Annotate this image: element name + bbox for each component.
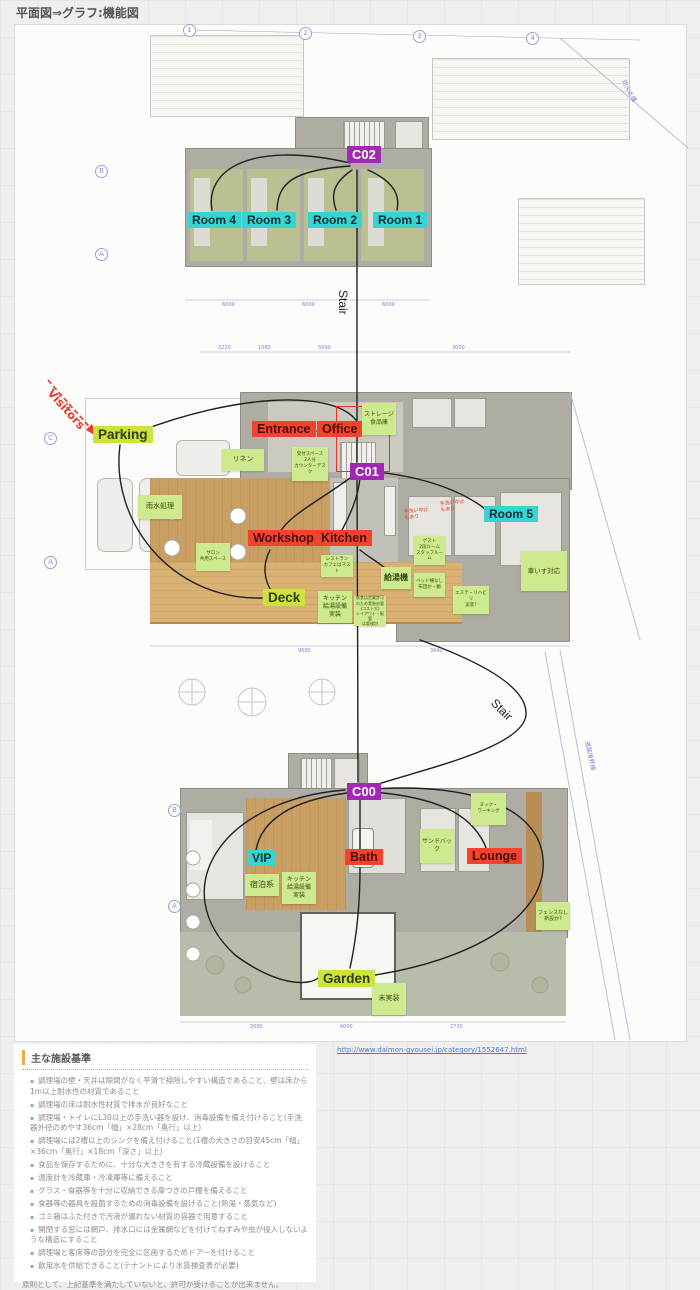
grid-ref-4: 4	[526, 32, 539, 45]
standards-item: 食品を保存するために、十分な大きさを有する冷蔵設備を設けること	[30, 1160, 308, 1171]
pantry-room	[454, 398, 486, 428]
sticky-salon[interactable]: サロン 共用スペース	[196, 543, 230, 571]
sticky-restaurant[interactable]: レストラン カフェはマスト	[321, 555, 353, 577]
page-title: 平面図⇒グラフ:機能図	[16, 4, 139, 21]
grid-ref-b-low: B	[168, 804, 181, 817]
dim-t2: 6000	[302, 302, 315, 308]
storage-room	[412, 398, 452, 428]
dim-m3: 5690	[318, 345, 331, 351]
standards-item: グラス・食器等を十分に収納できる扉つきの戸棚を備えること	[30, 1186, 308, 1197]
dim-m5: 9600	[298, 648, 311, 654]
node-entrance[interactable]: Entrance	[252, 421, 316, 437]
standards-item: 温度計を冷蔵庫・冷凍庫等に備えること	[30, 1173, 308, 1184]
sticky-storage[interactable]: ストレージ 食品庫	[362, 403, 396, 435]
node-office[interactable]: Office	[317, 421, 362, 437]
grid-ref-a-top: A	[95, 248, 108, 261]
standards-item: 調理場と客席等の部分を完全に区画するためドアーを付けること	[30, 1248, 308, 1259]
node-bath[interactable]: Bath	[345, 849, 383, 865]
grid-ref-1: 1	[183, 24, 196, 37]
sticky-este[interactable]: エステ・リハビリ 実装?	[453, 586, 489, 614]
sticky-boiler[interactable]: 給湯機	[381, 567, 411, 589]
standards-item: 開閉する窓には網戸、排水口には金属網などを付けてねずみや虫が侵入しないような構造…	[30, 1225, 308, 1246]
standards-item: 飲用水を供給できること(テナントにより水質検査表が必要)	[30, 1261, 308, 1272]
standards-item: 調理場・トイレにL30以上の手洗い器を設け、消毒設備を備え付けること(手洗器外径…	[30, 1113, 308, 1134]
node-vip[interactable]: VIP	[247, 850, 276, 866]
standards-list: 調理場の壁・天井は隙間がなく平滑で掃除しやすい構造であること、壁は床から1m以上…	[22, 1076, 308, 1272]
standards-footer: 原則として、上記基準を満たしていないと、許可が受けることが出来ません。	[22, 1279, 308, 1290]
standards-panel: 主な施設基準 調理場の壁・天井は隙間がなく平滑で掃除しやすい構造であること、壁は…	[14, 1044, 316, 1282]
dim-m2: 1080	[258, 345, 271, 351]
sticky-kitchen-equip-mid[interactable]: キッチン 給湯設備 実装	[318, 591, 352, 623]
sticky-kitchen-equip-low[interactable]: キッチン 給湯設備 実装	[282, 872, 316, 904]
dim-m1: 3220	[218, 345, 231, 351]
node-room-2[interactable]: Room 2	[308, 212, 362, 228]
node-c00[interactable]: C00	[347, 783, 381, 800]
grid-ref-b-top: B	[95, 165, 108, 178]
node-c01[interactable]: C01	[350, 463, 384, 480]
stairs-2f	[343, 121, 385, 149]
sticky-nook[interactable]: ヌック・ ワーキング	[471, 793, 506, 825]
node-garden[interactable]: Garden	[318, 970, 375, 987]
grid-ref-a-low: A	[168, 900, 181, 913]
sticky-not-implemented[interactable]: 未実装	[372, 983, 406, 1015]
node-deck[interactable]: Deck	[263, 589, 305, 606]
standards-item: 調理場には2槽以上のシンクを備え付けること(1槽の大きさの目安45cm「幅」×3…	[30, 1136, 308, 1157]
dim-m6: 3640	[430, 648, 443, 654]
roof-outline-lower-right	[518, 198, 645, 285]
dim-g3: 2730	[450, 1024, 463, 1030]
car-1	[97, 478, 133, 552]
dim-t1: 6000	[222, 302, 235, 308]
sticky-license-memo[interactable]: 飲食店営業許可 のため実装必要 (コスト大) レイアウト・配管 は要検討	[354, 596, 386, 626]
kitchen-counter-2	[384, 486, 396, 536]
stairs-gf	[300, 758, 332, 792]
node-room-4[interactable]: Room 4	[187, 212, 241, 228]
node-lounge[interactable]: Lounge	[467, 848, 522, 864]
sticky-wheelchair[interactable]: 車いす対応	[521, 551, 567, 591]
sticky-fence[interactable]: フェンスなし 新設か?	[536, 902, 570, 930]
sticky-linen[interactable]: リネン	[222, 449, 264, 471]
standards-heading-wrap: 主な施設基準	[22, 1050, 308, 1070]
node-room-3[interactable]: Room 3	[242, 212, 296, 228]
node-c02[interactable]: C02	[347, 146, 381, 163]
standards-item: 調理場の床は耐水性材質で排水が良好なこと	[30, 1100, 308, 1111]
page: { "title": "平面図⇒グラフ:機能図", "nodes": { "c0…	[0, 0, 700, 1282]
dim-m4: 3000	[452, 345, 465, 351]
grid-ref-2: 2	[299, 27, 312, 40]
node-room-5[interactable]: Room 5	[484, 506, 538, 522]
source-link[interactable]: http://www.daimon-gyousei.jp/category/15…	[337, 1046, 527, 1054]
dim-g1: 2000	[250, 1024, 263, 1030]
wc-2f	[395, 121, 423, 149]
sticky-bed-note[interactable]: ベッド柵なし 布団か・棚	[414, 573, 445, 597]
sticky-rainwater[interactable]: 雨水処理	[138, 495, 182, 519]
vip-bed	[190, 820, 212, 870]
node-room-1[interactable]: Room 1	[373, 212, 427, 228]
node-workshop[interactable]: Workshop	[248, 530, 319, 546]
roof-outline-left	[150, 35, 304, 117]
sticky-sandbag[interactable]: サンドバック	[420, 829, 454, 863]
standards-item: 食器等の器具を殺菌するための消毒設備を設けること(熱湯・蒸気など)	[30, 1199, 308, 1210]
grid-ref-a-mid: A	[44, 556, 57, 569]
sticky-reception[interactable]: 受付スペース 2人分 カウンターデスク	[292, 447, 328, 481]
node-parking[interactable]: Parking	[93, 426, 153, 443]
standards-heading: 主な施設基準	[22, 1050, 308, 1065]
standards-item: 調理場の壁・天井は隙間がなく平滑で掃除しやすい構造であること、壁は床から1m以上…	[30, 1076, 308, 1097]
sticky-lodging[interactable]: 宿泊系	[245, 874, 279, 896]
grid-ref-c-mid: C	[44, 432, 57, 445]
grid-ref-3: 3	[413, 30, 426, 43]
dim-t3: 6000	[382, 302, 395, 308]
roof-outline-right	[432, 58, 630, 140]
standards-item: ゴミ箱はふた付きで汚液が漏れない材質の容器で用意すること	[30, 1212, 308, 1223]
node-kitchen[interactable]: Kitchen	[316, 530, 372, 546]
dim-g2: 6000	[340, 1024, 353, 1030]
stair-label-upper: Stair	[336, 290, 350, 315]
sticky-guest-room[interactable]: ゲスト 2段ルーム スタッフルーム	[414, 536, 445, 565]
